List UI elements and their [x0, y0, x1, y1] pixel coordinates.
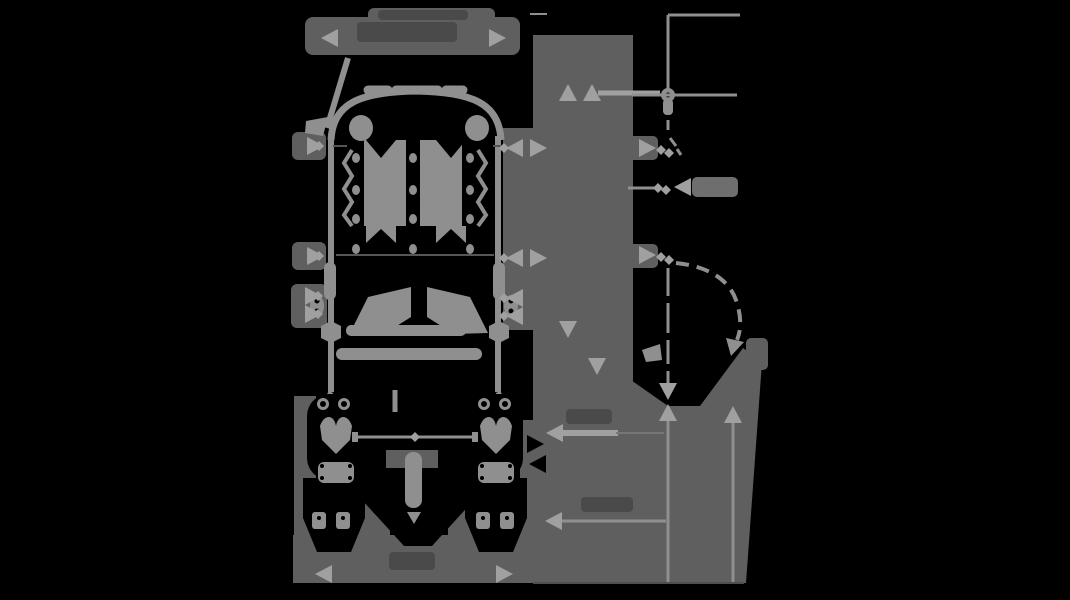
illegible-label-smudge: [581, 497, 633, 512]
foot-wedge: [642, 344, 662, 362]
footrest-edge: [336, 348, 482, 360]
canopy-corner: [305, 117, 328, 136]
crotch-strap: [405, 452, 422, 508]
centerline-dashes: [668, 120, 681, 384]
illegible-label-smudge: [378, 10, 468, 20]
shoulder-pad-left: [349, 115, 373, 141]
dimension-tick: [661, 185, 671, 195]
dimension-tick: [653, 183, 663, 193]
screenshot-canvas: [0, 0, 1070, 600]
dimension-arrowhead: [659, 383, 677, 400]
dimension-tick: [410, 432, 420, 442]
illegible-label-smudge: [566, 409, 612, 424]
illegible-label-smudge: [357, 22, 457, 42]
illegible-label-smudge: [389, 552, 435, 570]
strap-panel-right: [420, 140, 466, 243]
dimension-arrowhead: [674, 178, 691, 196]
strap-panel-left: [364, 140, 406, 243]
stroller-dimension-diagram: [0, 0, 1070, 600]
lacing-right: [478, 150, 486, 226]
front-view: [303, 58, 527, 552]
handle-rotation-arc: [676, 263, 740, 340]
seat-edge: [346, 325, 466, 336]
lacing-left: [344, 150, 352, 226]
shoulder-pad-right: [465, 115, 489, 141]
